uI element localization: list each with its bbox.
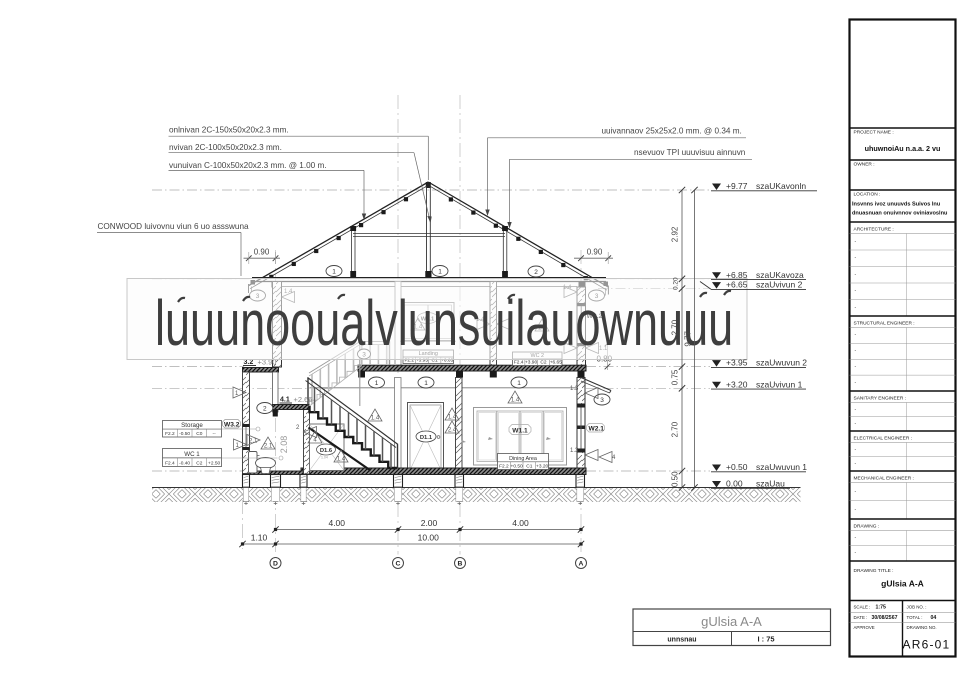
svg-text:+3.90: +3.90 [525, 360, 537, 366]
svg-text:+6.65: +6.65 [550, 360, 562, 366]
svg-text:szaUvivun 2: szaUvivun 2 [756, 280, 803, 290]
svg-text:4.00: 4.00 [328, 518, 345, 528]
svg-text:1.04: 1.04 [321, 456, 328, 460]
svg-text:W2.1: W2.1 [589, 426, 605, 433]
svg-text:gUlsia A-A: gUlsia A-A [701, 614, 762, 629]
svg-text:DATE :: DATE : [854, 615, 868, 620]
svg-text:D: D [273, 561, 278, 568]
svg-text:F2.2: F2.2 [165, 431, 175, 437]
svg-text:gUlsia A-A: gUlsia A-A [881, 579, 924, 589]
svg-text:szaUvivun 1: szaUvivun 1 [756, 379, 803, 389]
svg-text:2.00: 2.00 [421, 518, 438, 528]
svg-text:0.75: 0.75 [671, 369, 680, 385]
svg-text:2.1: 2.1 [264, 444, 273, 450]
svg-text:onlnivan 2C-150x50x20x2.3 mm.: onlnivan 2C-150x50x20x2.3 mm. [169, 126, 289, 135]
svg-text:szaUwuvun 1: szaUwuvun 1 [756, 462, 807, 472]
svg-text:szaUau: szaUau [756, 479, 785, 489]
svg-text:1.3: 1.3 [570, 448, 579, 454]
svg-text:04: 04 [931, 615, 937, 621]
svg-text:AR6-01: AR6-01 [903, 638, 951, 652]
svg-text:+6.85: +6.85 [726, 270, 748, 280]
svg-text:I : 75: I : 75 [757, 635, 774, 644]
svg-text:B: B [458, 561, 463, 568]
svg-text:+0.50: +0.50 [726, 462, 748, 472]
svg-text:+2.66: +2.66 [294, 395, 313, 404]
svg-text:SANITARY ENGINEER :: SANITARY ENGINEER : [854, 396, 907, 402]
svg-text:2.1: 2.1 [249, 439, 258, 445]
svg-text:W1.1: W1.1 [512, 428, 528, 435]
svg-text:2: 2 [263, 405, 267, 412]
svg-text:C0: C0 [196, 431, 202, 437]
svg-text:LOCATION :: LOCATION : [854, 192, 881, 198]
svg-text:luuunooualvlunsuilauownuuu: luuunooualvlunsuilauownuuu [155, 288, 733, 359]
svg-text:vunuivan C-100x50x20x2.3 mm.: vunuivan C-100x50x20x2.3 mm. @ 1.00 m. [169, 161, 327, 170]
svg-text:2.4: 2.4 [448, 428, 457, 434]
svg-text:MECHANICAL ENGINEER :: MECHANICAL ENGINEER : [854, 476, 914, 482]
svg-text:0.20: 0.20 [673, 277, 680, 290]
svg-text:C: C [396, 561, 401, 568]
svg-text:1: 1 [332, 268, 336, 275]
svg-text:1.10: 1.10 [251, 533, 268, 543]
svg-text:2: 2 [534, 269, 538, 276]
svg-text:DRAWING :: DRAWING : [854, 524, 880, 530]
svg-text:1: 1 [517, 380, 521, 387]
svg-text:9.77: 9.77 [684, 330, 693, 346]
svg-text:1: 1 [424, 380, 428, 387]
svg-text:2.70: 2.70 [671, 319, 680, 335]
svg-text:+6.65: +6.65 [726, 280, 748, 290]
svg-text:10.00: 10.00 [418, 533, 440, 543]
svg-text:4.1: 4.1 [280, 397, 290, 404]
svg-text:+0.50: +0.50 [511, 464, 523, 470]
svg-text:WC 1: WC 1 [184, 451, 200, 458]
svg-text:ELECTRICAL ENGINEER :: ELECTRICAL ENGINEER : [854, 436, 912, 442]
svg-text:-0.50: -0.50 [179, 431, 190, 437]
svg-text:0.90: 0.90 [254, 248, 270, 257]
svg-text:szaUwuvun 2: szaUwuvun 2 [756, 358, 807, 368]
svg-text:1: 1 [438, 268, 442, 275]
svg-text:uuivannaov 25x25x2.0 mm. @: uuivannaov 25x25x2.0 mm. @ 0.34 m. [602, 127, 742, 136]
svg-text:CONWOOD luivovnu viun 6 uo: CONWOOD luivovnu viun 6 uo assswuna [98, 222, 250, 231]
svg-text:STRUCTURAL ENGINEER :: STRUCTURAL ENGINEER : [854, 321, 915, 327]
svg-text:+2.50: +2.50 [208, 461, 220, 467]
svg-text:dnuasnuan onuivnnov oviniavosl: dnuasnuan onuivnnov oviniavoslnu [852, 211, 948, 217]
svg-text:1:75: 1:75 [876, 605, 886, 611]
svg-text:Dining Area: Dining Area [509, 456, 537, 462]
svg-text:JOB NO. :: JOB NO. : [907, 605, 927, 610]
svg-text:F2.4: F2.4 [165, 461, 175, 467]
svg-text:szaUKavoza: szaUKavoza [756, 270, 804, 280]
svg-text:2.92: 2.92 [671, 226, 680, 242]
svg-text:0.50: 0.50 [671, 471, 680, 487]
svg-text:A: A [579, 561, 584, 568]
svg-text:F2.2: F2.2 [499, 464, 509, 470]
svg-text:OWNER :: OWNER : [854, 162, 875, 168]
svg-text:Insvnns ivoz unuuvds Suivos ln: Insvnns ivoz unuuvds Suivos lnu [852, 202, 941, 208]
svg-text:D1.1: D1.1 [420, 435, 433, 441]
svg-text:szaUKavonln: szaUKavonln [756, 181, 806, 191]
svg-text:uhuwnoiAu n.a.a. 2 vu: uhuwnoiAu n.a.a. 2 vu [865, 144, 941, 153]
svg-text:APPROVE: APPROVE [854, 625, 875, 630]
svg-text:1.3: 1.3 [570, 386, 579, 392]
svg-text:+3.20: +3.20 [536, 464, 548, 470]
svg-text:C2: C2 [540, 360, 546, 366]
svg-text:+3.20: +3.20 [726, 379, 748, 389]
svg-text:TOTAL :: TOTAL : [907, 615, 923, 620]
svg-text:PROJECT NAME :: PROJECT NAME : [854, 130, 894, 136]
svg-text:SCALE :: SCALE : [854, 605, 871, 610]
svg-text:0.90: 0.90 [587, 248, 603, 257]
svg-text:-0.40: -0.40 [179, 461, 190, 467]
svg-text:1.4: 1.4 [448, 415, 457, 421]
svg-text:DRAWING TITLE :: DRAWING TITLE : [854, 568, 894, 574]
svg-text:3.2: 3.2 [244, 359, 254, 366]
svg-text:1.4: 1.4 [337, 457, 346, 463]
svg-text:--: -- [213, 432, 217, 437]
svg-text:1: 1 [375, 380, 379, 387]
svg-text:nvivan 2C-100x50x20x2.3 mm.: nvivan 2C-100x50x20x2.3 mm. [169, 143, 282, 152]
svg-text:C2: C2 [196, 461, 202, 467]
svg-text:ARCHITECTURE :: ARCHITECTURE : [854, 227, 894, 233]
svg-text:2.08: 2.08 [279, 436, 289, 454]
svg-text:3: 3 [600, 397, 604, 404]
svg-text:1.4: 1.4 [371, 416, 380, 422]
svg-text:DRAWING NO.: DRAWING NO. [907, 625, 937, 630]
svg-text:D1.6: D1.6 [320, 448, 333, 454]
svg-text:0.00: 0.00 [726, 479, 743, 489]
svg-text:unnsnau: unnsnau [667, 637, 696, 644]
svg-text:30/08/2567: 30/08/2567 [872, 615, 898, 621]
svg-text:2.70: 2.70 [671, 421, 680, 437]
svg-text:C1: C1 [526, 464, 532, 470]
svg-text:+9.77: +9.77 [726, 181, 748, 191]
svg-text:W3.2: W3.2 [224, 422, 240, 429]
svg-text:4.00: 4.00 [512, 518, 529, 528]
svg-text:F2.4: F2.4 [514, 360, 524, 366]
svg-text:nsevuov TPI uuuvisuu ainnuvn: nsevuov TPI uuuvisuu ainnuvn [634, 148, 746, 157]
svg-text:1.4: 1.4 [511, 398, 520, 404]
svg-text:Storage: Storage [181, 422, 203, 429]
svg-text:+3.95: +3.95 [726, 358, 748, 368]
